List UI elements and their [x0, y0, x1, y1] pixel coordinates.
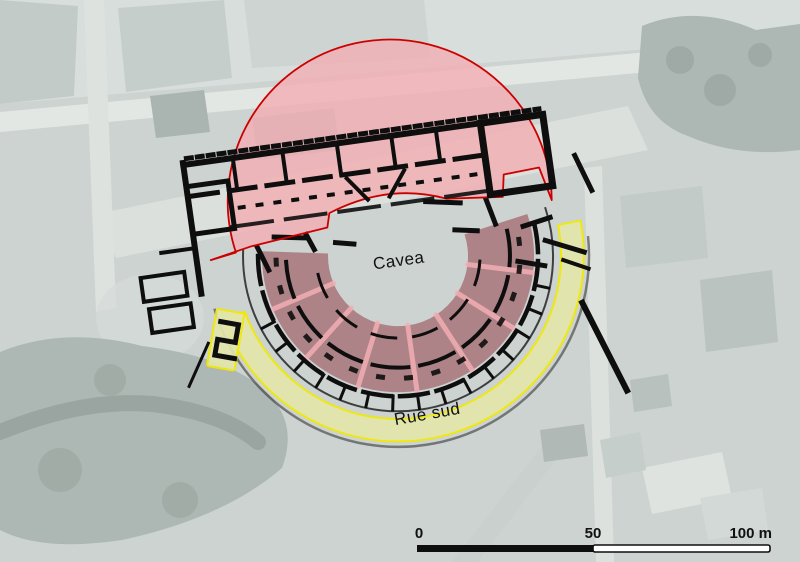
- archaeological-site-map: Cavea Rue sud 0 50 100 m: [0, 0, 800, 562]
- scale-bar-black-segment: [417, 545, 593, 552]
- scale-tick-50: 50: [585, 525, 602, 542]
- scale-bar-white-segment: [593, 545, 770, 552]
- scale-tick-100: 100 m: [729, 525, 772, 542]
- scale-tick-0: 0: [415, 525, 423, 542]
- site-plan-svg: Cavea Rue sud 0 50 100 m: [0, 0, 800, 562]
